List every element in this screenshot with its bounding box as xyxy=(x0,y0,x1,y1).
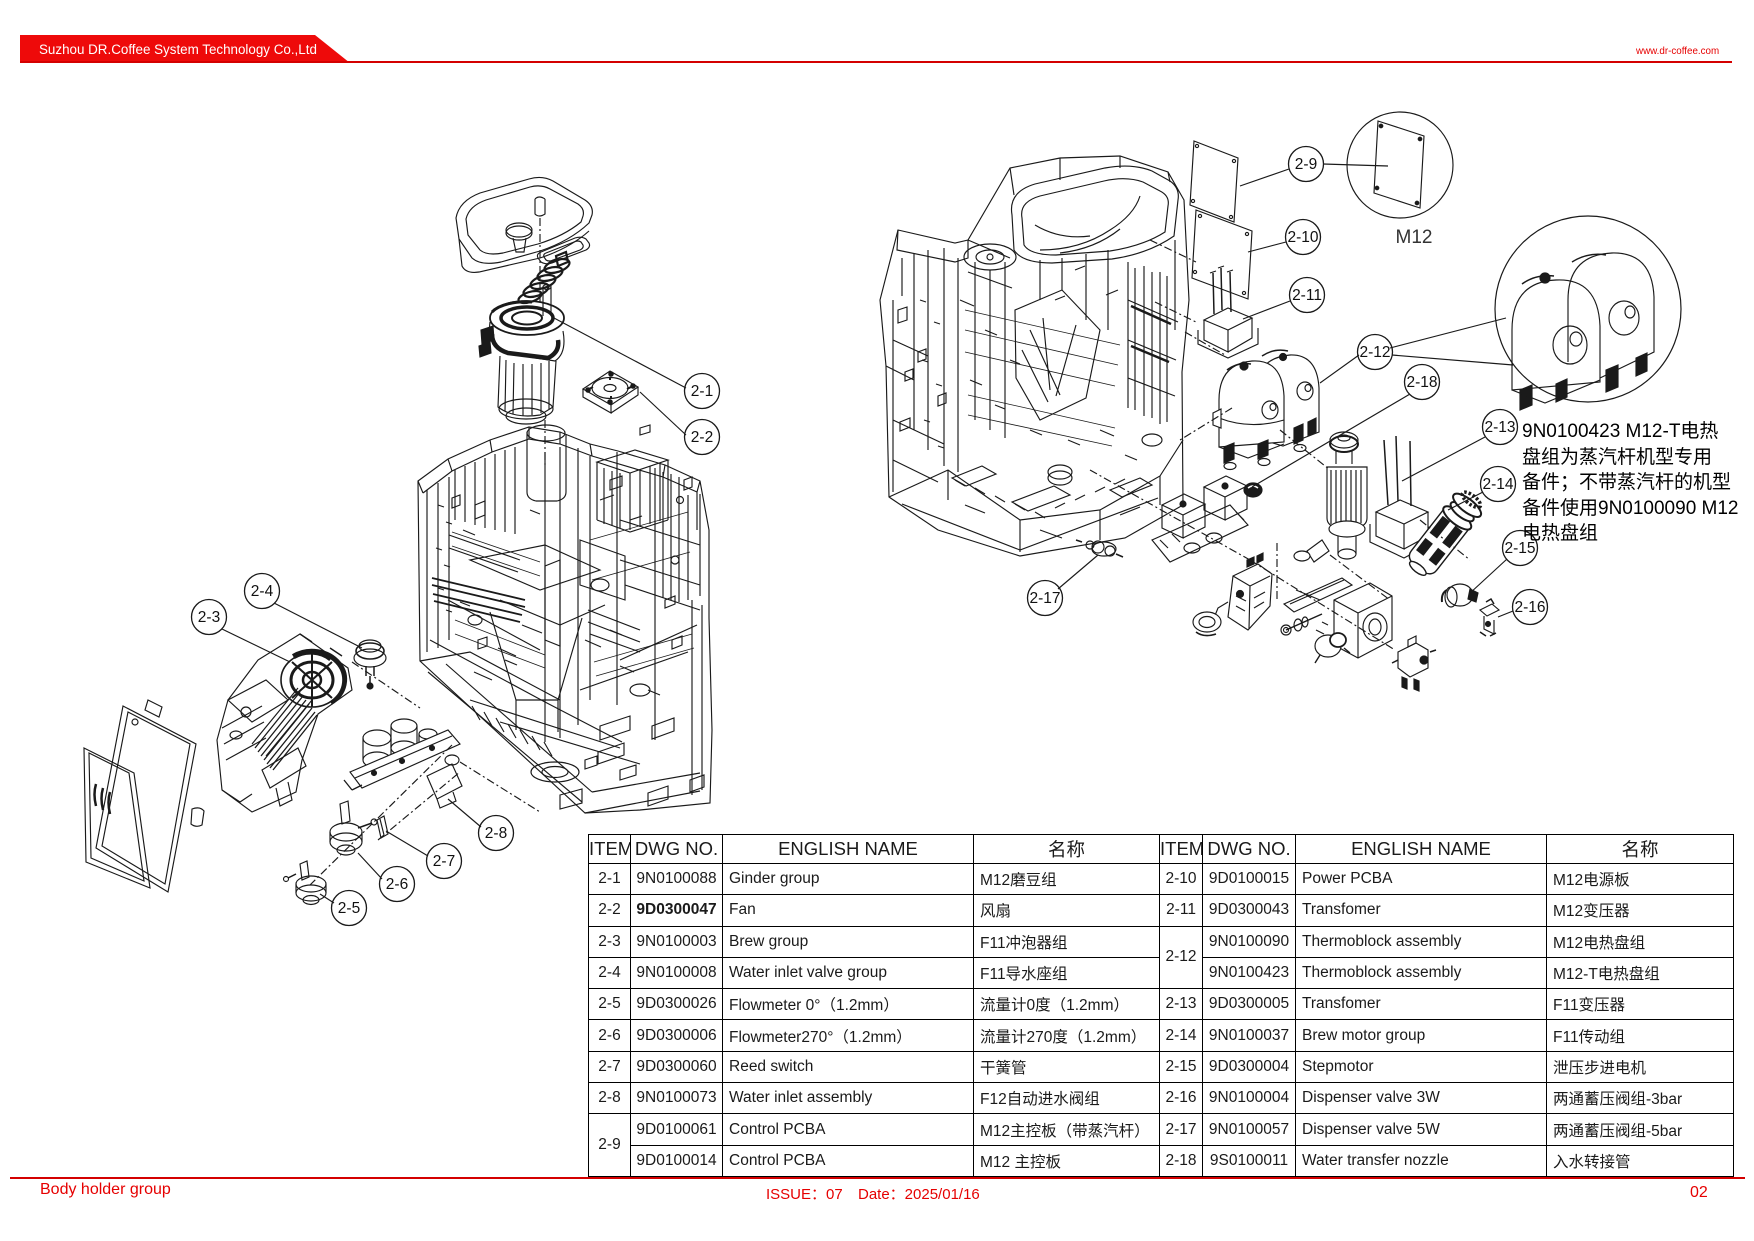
svg-text:2-4: 2-4 xyxy=(251,583,274,600)
svg-text:2-8: 2-8 xyxy=(485,825,507,842)
svg-text:2-16: 2-16 xyxy=(1514,599,1545,616)
svg-text:M12: M12 xyxy=(1396,227,1433,248)
svg-text:2-7: 2-7 xyxy=(433,853,455,870)
svg-text:2-2: 2-2 xyxy=(691,429,713,446)
svg-text:2-18: 2-18 xyxy=(1406,374,1437,391)
svg-text:2-17: 2-17 xyxy=(1029,590,1060,607)
svg-text:2-10: 2-10 xyxy=(1287,229,1318,246)
svg-text:2-3: 2-3 xyxy=(198,609,220,626)
svg-text:2-11: 2-11 xyxy=(1292,287,1322,304)
svg-text:2-6: 2-6 xyxy=(386,876,408,893)
svg-text:2-9: 2-9 xyxy=(1295,156,1317,173)
svg-text:2-5: 2-5 xyxy=(338,900,360,917)
svg-text:2-1: 2-1 xyxy=(691,383,713,400)
svg-text:2-13: 2-13 xyxy=(1484,419,1515,436)
svg-text:2-14: 2-14 xyxy=(1482,476,1513,493)
svg-text:2-12: 2-12 xyxy=(1359,344,1390,361)
